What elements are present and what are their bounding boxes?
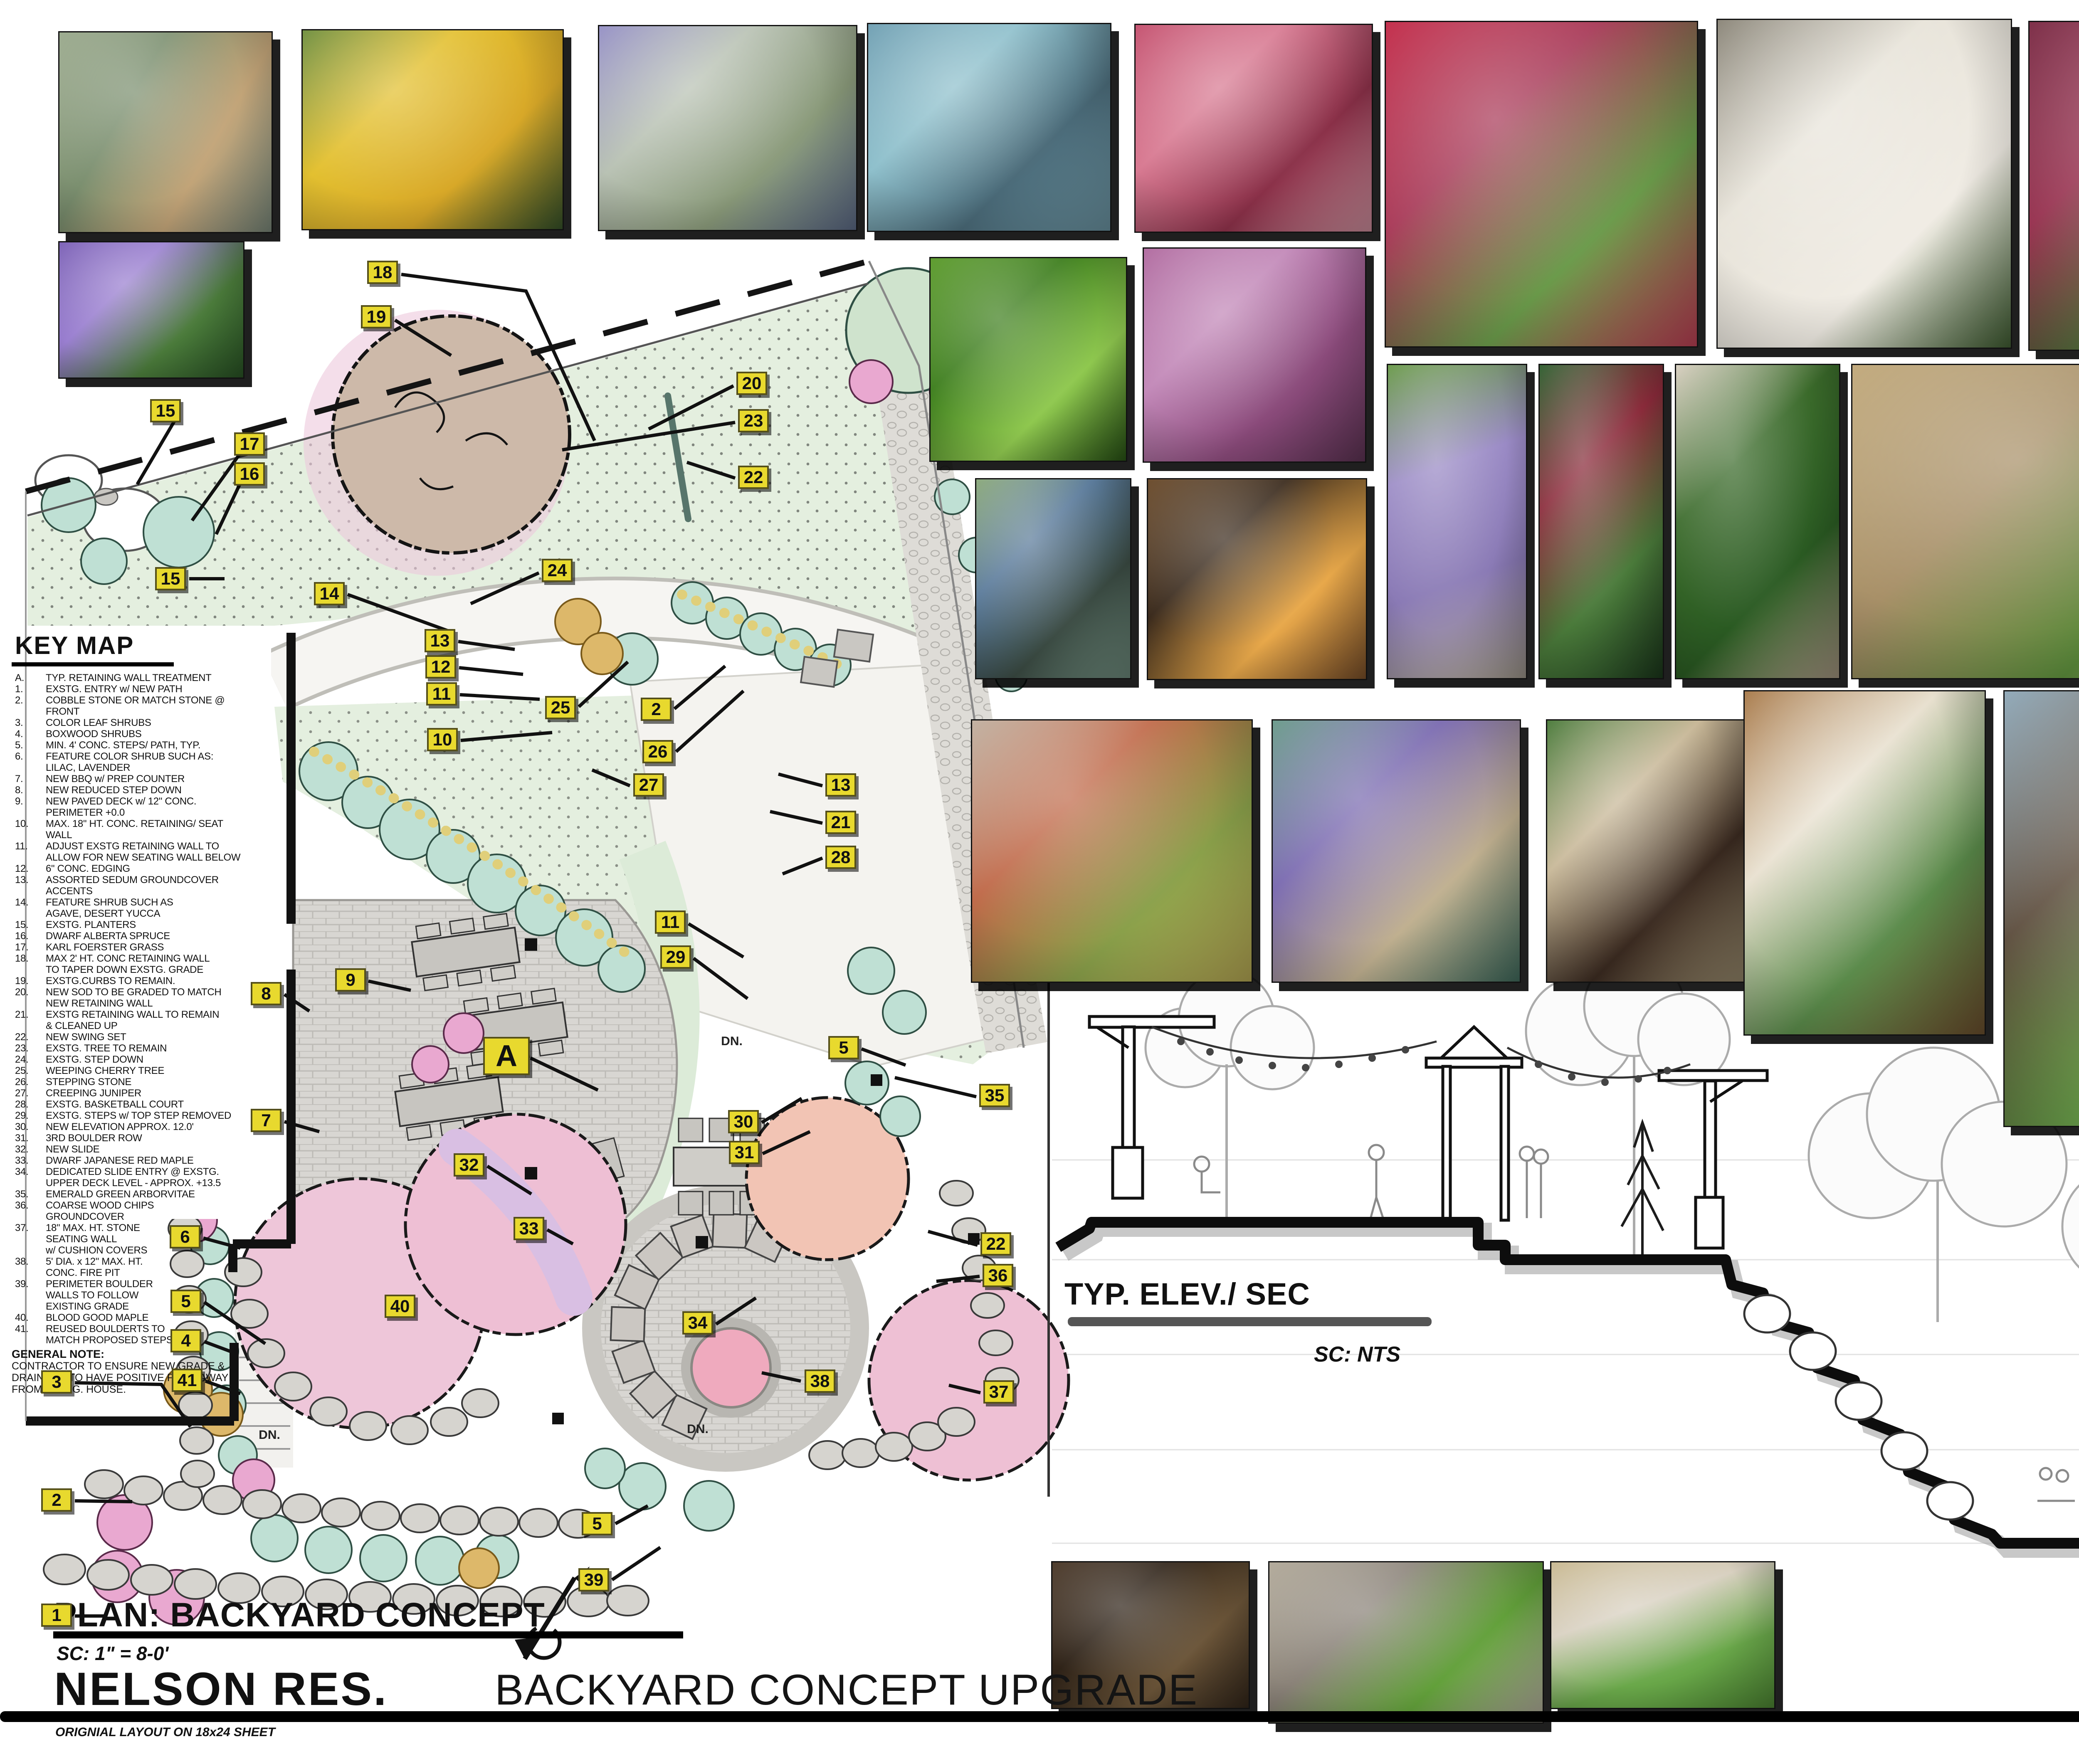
keymap-item-number: 37. (12, 1222, 46, 1256)
keymap-item-number: 38. (12, 1256, 46, 1278)
general-note-title: GENERAL NOTE: (12, 1348, 104, 1360)
keymap-item-number: 20. (12, 987, 46, 1009)
keymap-item: 26.STEPPING STONE (12, 1076, 251, 1088)
fire-pit (691, 1328, 770, 1407)
keymap-item-number: 13. (12, 874, 46, 897)
keymap-item-text: NEW PAVED DECK w/ 12" CONC. PERIMETER +0… (46, 796, 251, 818)
keymap-item: 15.EXSTG. PLANTERS (12, 919, 251, 930)
keymap-item-text: COBBLE STONE OR MATCH STONE @ FRONT (46, 695, 251, 717)
keymap-item-text: REUSED BOULDERTS TO MATCH PROPOSED STEPS (46, 1323, 251, 1346)
dn-label: DN. (687, 1422, 709, 1436)
keymap-item-number: A. (12, 672, 46, 683)
keymap-item-number: 17. (12, 942, 46, 953)
keymap-item: 31.3RD BOULDER ROW (12, 1132, 251, 1144)
design-sheet: KEY MAP A.TYP. RETAINING WALL TREATMENT1… (0, 0, 2079, 1764)
photo-agave (58, 31, 273, 233)
keymap-item-text: EXSTG. BASKETBALL COURT (46, 1099, 251, 1110)
keymap-item-text: COLOR LEAF SHRUBS (46, 717, 251, 728)
keymap-item: 3.COLOR LEAF SHRUBS (12, 717, 251, 728)
plan-scale: SC: 1" = 8-0' (57, 1642, 168, 1665)
key-map: KEY MAP A.TYP. RETAINING WALL TREATMENT1… (12, 631, 251, 1395)
keymap-item-number: 18. (12, 953, 46, 975)
photo-barberry (1134, 24, 1373, 233)
keymap-item-text: EXSTG. STEPS w/ TOP STEP REMOVED (46, 1110, 251, 1121)
keymap-item-number: 15. (12, 919, 46, 930)
keymap-item-text: NEW REDUCED STEP DOWN (46, 785, 251, 796)
keymap-item: 14.FEATURE SHRUB SUCH AS AGAVE, DESERT Y… (12, 897, 251, 919)
keymap-item-number: 19. (12, 975, 46, 987)
keymap-item-number: 5. (12, 740, 46, 751)
keymap-item-text: EXSTG.CURBS TO REMAIN. (46, 975, 251, 987)
keymap-item-text: TYP. RETAINING WALL TREATMENT (46, 672, 251, 683)
keymap-item: 13.ASSORTED SEDUM GROUNDCOVER ACCENTS (12, 874, 251, 897)
keymap-item-text: PERIMETER BOULDER WALLS TO FOLLOW EXISTI… (46, 1278, 251, 1312)
sheet-date: JUL, 2025 (1913, 1725, 2079, 1764)
keymap-item-number: 23. (12, 1043, 46, 1054)
keymap-item-text: EXSTG RETAINING WALL TO REMAIN & CLEANED… (46, 1009, 251, 1031)
keymap-item-number: 34. (12, 1166, 46, 1189)
keymap-item-text: 3RD BOULDER ROW (46, 1132, 251, 1144)
keymap-item-number: 35. (12, 1189, 46, 1200)
photo-curb-edging (1550, 1561, 1775, 1709)
keymap-item: 37.18" MAX. HT. STONE SEATING WALL w/ CU… (12, 1222, 251, 1256)
photo-pergola-seating (1743, 690, 1986, 1036)
keymap-item-number: 8. (12, 785, 46, 796)
keymap-item-number: 41. (12, 1323, 46, 1346)
elevation-title: TYP. ELEV./ SEC (1064, 1276, 1310, 1312)
keymap-item-number: 39. (12, 1278, 46, 1312)
photo-weeping-cherry (1716, 19, 2012, 349)
keymap-item-text: BOXWOOD SHRUBS (46, 728, 251, 740)
keymap-item-text: WEEPING CHERRY TREE (46, 1065, 251, 1076)
keymap-item-text: DWARF ALBERTA SPRUCE (46, 930, 251, 942)
keymap-item-number: 24. (12, 1054, 46, 1065)
keymap-item-number: 10. (12, 818, 46, 841)
photo-lavender-walk (1387, 364, 1527, 679)
keymap-item-text: DEDICATED SLIDE ENTRY @ EXSTG. UPPER DEC… (46, 1166, 251, 1189)
plan-title-underline (53, 1631, 683, 1638)
keymap-item-text: NEW ELEVATION APPROX. 12.0' (46, 1121, 251, 1132)
keymap-item-text: MAX. 18" HT. CONC. RETAINING/ SEAT WALL (46, 818, 251, 841)
photo-hillside-slide (2003, 690, 2079, 1127)
elevation-title-underline (1068, 1317, 1432, 1326)
keymap-item-text: FEATURE COLOR SHRUB SUCH AS: LILAC, LAVE… (46, 751, 251, 773)
keymap-item-text: EMERALD GREEN ARBORVITAE (46, 1189, 251, 1200)
keymap-item: 27.CREEPING JUNIPER (12, 1088, 251, 1099)
keymap-item-number: 30. (12, 1121, 46, 1132)
project-subtitle: BACKYARD CONCEPT UPGRADE (495, 1665, 1198, 1715)
keymap-item: 39.PERIMETER BOULDER WALLS TO FOLLOW EXI… (12, 1278, 251, 1312)
keymap-item-text: ASSORTED SEDUM GROUNDCOVER ACCENTS (46, 874, 251, 897)
keymap-item-number: 26. (12, 1076, 46, 1088)
keymap-item-text: 5' DIA. x 12" MAX. HT. CONC. FIRE PIT (46, 1256, 251, 1278)
keymap-item: 32.NEW SLIDE (12, 1144, 251, 1155)
keymap-item: 19.EXSTG.CURBS TO REMAIN. (12, 975, 251, 987)
keymap-item-number: 33. (12, 1155, 46, 1166)
keymap-item-text: STEPPING STONE (46, 1076, 251, 1088)
keymap-item: A.TYP. RETAINING WALL TREATMENT (12, 672, 251, 683)
key-map-title: KEY MAP (12, 631, 174, 666)
keymap-item: 41.REUSED BOULDERTS TO MATCH PROPOSED ST… (12, 1323, 251, 1346)
keymap-item: 38.5' DIA. x 12" MAX. HT. CONC. FIRE PIT (12, 1256, 251, 1278)
keymap-item: 34.DEDICATED SLIDE ENTRY @ EXSTG. UPPER … (12, 1166, 251, 1189)
layout-note: ORIGNIAL LAYOUT ON 18x24 SHEET (55, 1725, 275, 1739)
keymap-item-number: 12. (12, 863, 46, 874)
keymap-item: 7.NEW BBQ w/ PREP COUNTER (12, 773, 251, 785)
plan-title: PLAN: BACKYARD CONCEPT (54, 1596, 545, 1635)
keymap-item-number: 6. (12, 751, 46, 773)
keymap-item-text: EXSTG. STEP DOWN (46, 1054, 251, 1065)
photo-spruce-maple (1538, 364, 1664, 679)
keymap-item-number: 29. (12, 1110, 46, 1121)
keymap-item-number: 2. (12, 695, 46, 717)
keymap-item-number: 4. (12, 728, 46, 740)
photo-japanese-garden (2028, 21, 2079, 351)
keymap-item-number: 27. (12, 1088, 46, 1099)
keymap-item-text: NEW BBQ w/ PREP COUNTER (46, 773, 251, 785)
keymap-item: 25.WEEPING CHERRY TREE (12, 1065, 251, 1076)
photo-red-laceleaf-maple (1385, 21, 1698, 348)
keymap-item-text: KARL FOERSTER GRASS (46, 942, 251, 953)
title-bar (0, 1711, 2079, 1722)
keymap-item: 21.EXSTG RETAINING WALL TO REMAIN & CLEA… (12, 1009, 251, 1031)
keymap-item: 12.6" CONC. EDGING (12, 863, 251, 874)
keymap-item: 5.MIN. 4' CONC. STEPS/ PATH, TYP. (12, 740, 251, 751)
keymap-item: 36.COARSE WOOD CHIPS GROUNDCOVER (12, 1200, 251, 1222)
keymap-item: 33.DWARF JAPANESE RED MAPLE (12, 1155, 251, 1166)
keymap-item: 6.FEATURE COLOR SHRUB SUCH AS: LILAC, LA… (12, 751, 251, 773)
keymap-item: 9.NEW PAVED DECK w/ 12" CONC. PERIMETER … (12, 796, 251, 818)
keymap-item: 1.EXSTG. ENTRY w/ NEW PATH (12, 683, 251, 695)
photo-russian-sage (598, 25, 857, 231)
photo-arborvitae (1675, 364, 1840, 679)
keymap-item-text: 6" CONC. EDGING (46, 863, 251, 874)
keymap-item-text: CREEPING JUNIPER (46, 1088, 251, 1099)
keymap-item: 30.NEW ELEVATION APPROX. 12.0' (12, 1121, 251, 1132)
photo-block-retaining-wall (1546, 719, 1746, 983)
photo-swing-set (975, 478, 1131, 679)
photo-sedum-rock-garden (971, 719, 1253, 983)
photo-river-rocks (1268, 1561, 1544, 1724)
keymap-item-text: FEATURE SHRUB SUCH AS AGAVE, DESERT YUCC… (46, 897, 251, 919)
keymap-item-number: 14. (12, 897, 46, 919)
keymap-item: 11.ADJUST EXSTG RETAINING WALL TO ALLOW … (12, 841, 251, 863)
photo-string-lights (1147, 478, 1367, 680)
keymap-item: 10.MAX. 18" HT. CONC. RETAINING/ SEAT WA… (12, 818, 251, 841)
keymap-item-number: 9. (12, 796, 46, 818)
keymap-item: 8.NEW REDUCED STEP DOWN (12, 785, 251, 796)
keymap-item-text: NEW SOD TO BE GRADED TO MATCH NEW RETAIN… (46, 987, 251, 1009)
keymap-item: 18.MAX 2' HT. CONC RETAINING WALL TO TAP… (12, 953, 251, 975)
keymap-item-number: 3. (12, 717, 46, 728)
key-map-list: A.TYP. RETAINING WALL TREATMENT1.EXSTG. … (12, 672, 251, 1346)
photo-liriope (58, 241, 244, 379)
dn-label: DN. (259, 1428, 280, 1442)
keymap-item-text: EXSTG. TREE TO REMAIN (46, 1043, 251, 1054)
keymap-item-text: MIN. 4' CONC. STEPS/ PATH, TYP. (46, 740, 251, 751)
project-name: NELSON RES. (54, 1662, 388, 1716)
photo-boxwood (929, 257, 1127, 462)
keymap-item: 17.KARL FOERSTER GRASS (12, 942, 251, 953)
keymap-item-text: ADJUST EXSTG RETAINING WALL TO ALLOW FOR… (46, 841, 251, 863)
keymap-item: 20.NEW SOD TO BE GRADED TO MATCH NEW RET… (12, 987, 251, 1009)
keymap-item-text: NEW SLIDE (46, 1144, 251, 1155)
keymap-item-number: 7. (12, 773, 46, 785)
keymap-item-number: 11. (12, 841, 46, 863)
elevation-scale: SC: NTS (1314, 1342, 1400, 1367)
keymap-item-number: 36. (12, 1200, 46, 1222)
keymap-item-number: 21. (12, 1009, 46, 1031)
keymap-item-number: 31. (12, 1132, 46, 1144)
keymap-item-number: 1. (12, 683, 46, 695)
keymap-item: 22.NEW SWING SET (12, 1031, 251, 1043)
keymap-item: 29.EXSTG. STEPS w/ TOP STEP REMOVED (12, 1110, 251, 1121)
keymap-item-text: EXSTG. PLANTERS (46, 919, 251, 930)
keymap-item-text: COARSE WOOD CHIPS GROUNDCOVER (46, 1200, 251, 1222)
keymap-item: 24.EXSTG. STEP DOWN (12, 1054, 251, 1065)
keymap-item-number: 32. (12, 1144, 46, 1155)
photo-loropetalum (1143, 247, 1366, 463)
general-note: GENERAL NOTE: CONTRACTOR TO ENSURE NEW G… (12, 1348, 251, 1395)
keymap-item-text: DWARF JAPANESE RED MAPLE (46, 1155, 251, 1166)
keymap-item: 4.BOXWOOD SHRUBS (12, 728, 251, 740)
keymap-item: 40.BLOOD GOOD MAPLE (12, 1312, 251, 1323)
keymap-item-text: BLOOD GOOD MAPLE (46, 1312, 251, 1323)
keymap-item-number: 28. (12, 1099, 46, 1110)
photo-succulent-bed (1272, 719, 1521, 983)
keymap-item-text: MAX 2' HT. CONC RETAINING WALL TO TAPER … (46, 953, 251, 975)
keymap-item: 28.EXSTG. BASKETBALL COURT (12, 1099, 251, 1110)
photo-daylilies (301, 29, 564, 230)
keymap-item-number: 25. (12, 1065, 46, 1076)
dn-label: DN. (721, 1034, 743, 1049)
general-note-text: CONTRACTOR TO ENSURE NEW GRADE & DRAINAG… (12, 1360, 228, 1395)
photo-blue-fescue (867, 23, 1111, 232)
elevation-drawing (1049, 948, 2079, 1551)
keymap-item-number: 22. (12, 1031, 46, 1043)
keymap-item: 35.EMERALD GREEN ARBORVITAE (12, 1189, 251, 1200)
keymap-item-number: 16. (12, 930, 46, 942)
keymap-item: 16.DWARF ALBERTA SPRUCE (12, 930, 251, 942)
keymap-item: 23.EXSTG. TREE TO REMAIN (12, 1043, 251, 1054)
keymap-item-number: 40. (12, 1312, 46, 1323)
keymap-item: 2.COBBLE STONE OR MATCH STONE @ FRONT (12, 695, 251, 717)
keymap-item-text: EXSTG. ENTRY w/ NEW PATH (46, 683, 251, 695)
keymap-item-text: 18" MAX. HT. STONE SEATING WALL w/ CUSHI… (46, 1222, 251, 1256)
photo-boulder-stairs (1851, 364, 2079, 679)
keymap-item-text: NEW SWING SET (46, 1031, 251, 1043)
